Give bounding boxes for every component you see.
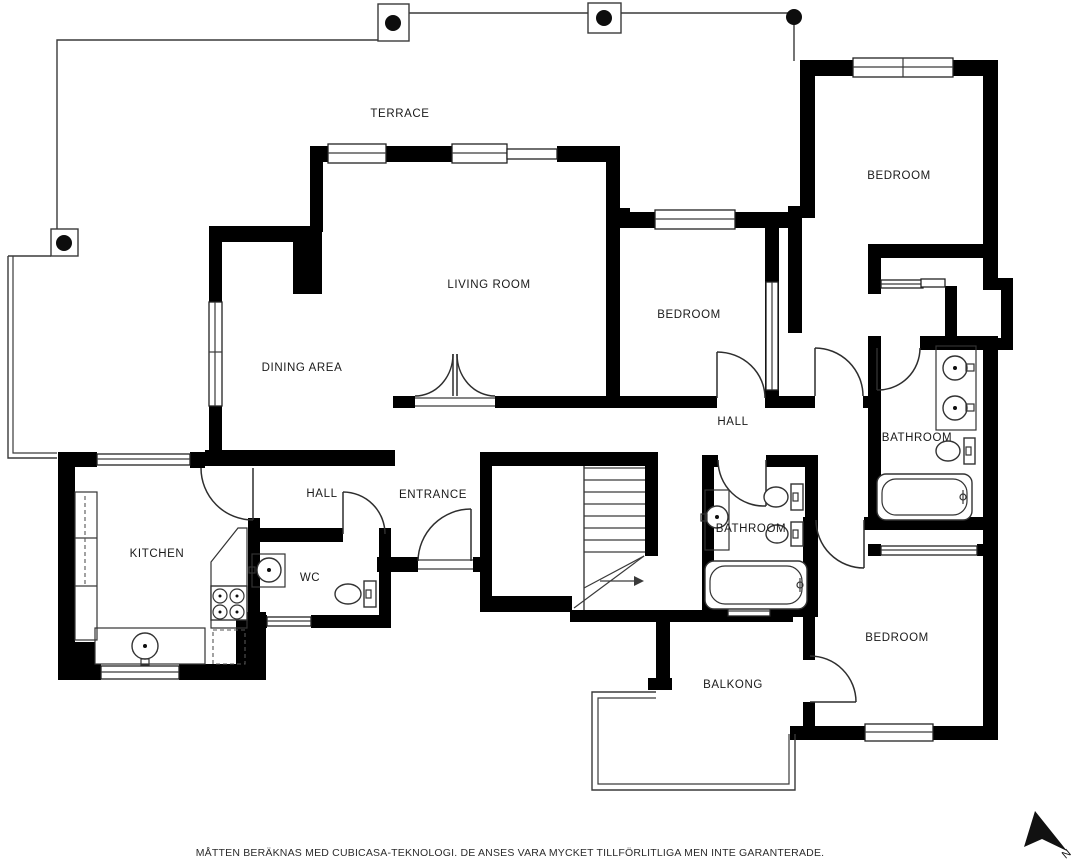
- sink: [701, 490, 729, 550]
- window-bedroom-middle: [655, 210, 735, 229]
- room-label-bedroom-top-right: BEDROOM: [867, 170, 931, 182]
- window-living-room-2: [452, 144, 507, 163]
- kitchen-counter-left: [75, 492, 97, 640]
- sink: [943, 396, 974, 420]
- window-kitchen-top: [97, 454, 190, 465]
- door-entrance: [418, 509, 471, 561]
- kitchen-stove: [211, 586, 247, 620]
- window-bedroom-top-right: [853, 58, 953, 77]
- floor-plan-svg: TERRACE LIVING ROOM DINING AREA BEDROOM …: [0, 0, 1078, 864]
- terrace-corner-dot: [786, 9, 802, 25]
- disclaimer-text: MÅTTEN BERÄKNAS MED CUBICASA-TEKNOLOGI. …: [196, 846, 825, 859]
- terrace-pillar-dot: [385, 15, 401, 31]
- room-label-bathroom-middle: BATHROOM: [716, 523, 786, 535]
- door-balcony: [810, 656, 856, 702]
- bathroom-middle-fixtures: [701, 484, 807, 609]
- wc-toilet: [335, 581, 376, 607]
- room-label-bedroom-bottom: BEDROOM: [865, 632, 929, 644]
- room-label-bathroom-right: BATHROOM: [882, 432, 952, 444]
- door-sill-entrance: [418, 560, 473, 569]
- double-door-living-room: [415, 354, 495, 396]
- stairs: [574, 466, 645, 610]
- toilet: [764, 484, 803, 510]
- window-living-room-3: [507, 149, 557, 159]
- sliding-door-bedroom-bottom: [881, 546, 977, 555]
- closet-rails: [881, 279, 945, 288]
- terrace-pillar-dot: [596, 10, 612, 26]
- room-label-kitchen: KITCHEN: [130, 548, 185, 560]
- window-living-room-1: [328, 144, 386, 163]
- window-bedroom-bottom: [865, 724, 933, 741]
- window-wc-bottom: [267, 617, 311, 626]
- room-label-hall-entrance: HALL: [306, 488, 337, 500]
- terrace-pillar-dot: [56, 235, 72, 251]
- room-label-bedroom-middle: BEDROOM: [657, 309, 721, 321]
- door-bedroom-bottom-entry: [816, 520, 864, 568]
- window-bedroom-middle-east: [766, 282, 778, 390]
- terrace-outline: [8, 3, 802, 458]
- room-label-entrance: ENTRANCE: [399, 489, 467, 501]
- kitchen-fixtures: [75, 492, 247, 665]
- north-arrow-icon: N: [1024, 811, 1074, 861]
- room-label-terrace: TERRACE: [370, 108, 429, 120]
- bathtub: [877, 474, 972, 520]
- door-wc: [343, 492, 385, 534]
- room-label-living-room: LIVING ROOM: [447, 279, 530, 291]
- room-label-balcony: BALKONG: [703, 679, 763, 691]
- room-label-dining-area: DINING AREA: [262, 362, 343, 374]
- window-dining-west: [209, 302, 222, 406]
- door-kitchen: [201, 468, 253, 520]
- north-label: N: [1060, 847, 1074, 861]
- sink: [943, 356, 974, 380]
- room-label-hall-upper: HALL: [717, 416, 748, 428]
- floor-plan-page: TERRACE LIVING ROOM DINING AREA BEDROOM …: [0, 0, 1078, 864]
- door-sill-double-door: [415, 398, 495, 406]
- door-bedroom-middle: [717, 352, 765, 398]
- room-label-wc: WC: [300, 572, 320, 584]
- door-bathroom-right: [877, 348, 920, 390]
- door-bathroom-middle: [718, 460, 766, 506]
- kitchen-sink: [132, 633, 158, 665]
- door-hall-nook: [815, 348, 863, 396]
- balcony-railing: [592, 692, 795, 790]
- bathtub: [705, 561, 807, 609]
- window-kitchen-bottom: [101, 666, 179, 679]
